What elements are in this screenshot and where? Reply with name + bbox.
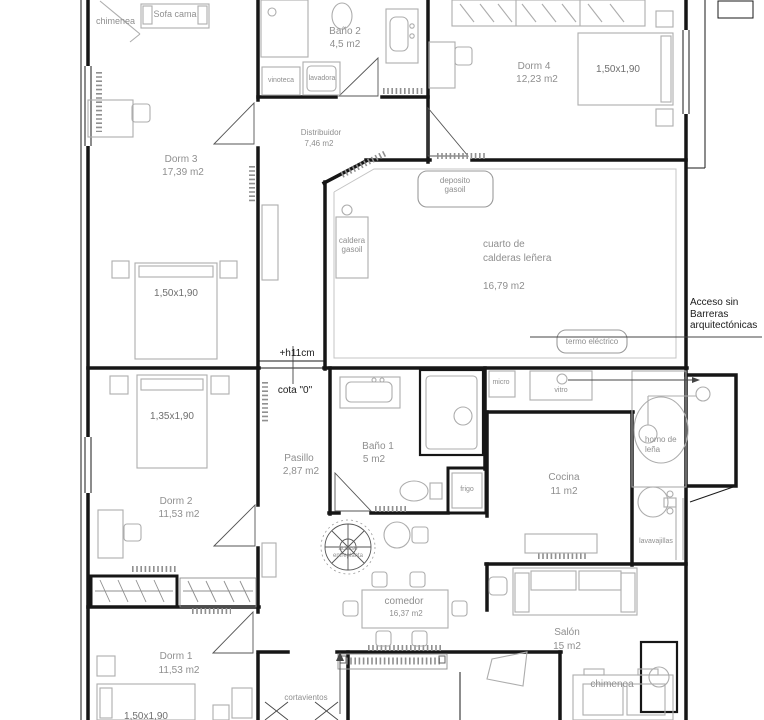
label-bed-dorm3: 1,50x1,90 (154, 288, 198, 300)
label-cota-cero: cota "0" (278, 385, 312, 397)
label-dorm1-name: Dorm 1 (160, 651, 193, 663)
cabinet-comedor (262, 543, 276, 577)
washbasin-bano1 (340, 377, 400, 408)
desk-dorm4 (429, 42, 472, 88)
washbasin-bano2 (386, 9, 418, 63)
label-salon-name: Salón (554, 627, 580, 639)
label-dorm3-area: 17,39 m2 (162, 167, 204, 179)
desk-dorm2 (98, 510, 141, 558)
horno-lena-oven (632, 371, 710, 487)
label-bed-dorm1: 1,50x1,90 (124, 711, 168, 720)
closet-dorm4 (452, 0, 645, 26)
cabinet-distribuidor (262, 205, 278, 280)
label-distribuidor-area: 7,46 m2 (305, 139, 334, 148)
sofa-salon (513, 568, 637, 615)
chair-dorm1 (213, 688, 252, 720)
label-chimenea-salon: chimenea (590, 679, 633, 691)
vitro-box (530, 371, 592, 400)
label-vitro: vitro (554, 387, 567, 395)
label-pasillo-name: Pasillo (284, 453, 313, 465)
label-termo-electrico: termo eléctrico (566, 337, 618, 346)
label-lavavajillas: lavavajillas (639, 538, 673, 546)
label-lavadora: lavadora (309, 75, 336, 83)
label-micro: micro (492, 379, 509, 387)
side-table-salon (489, 577, 507, 595)
label-distribuidor-name: Distribuidor (301, 128, 341, 137)
label-dorm2-name: Dorm 2 (160, 496, 193, 508)
label-cocina-area: 11 m2 (550, 486, 577, 498)
shower-bano1-inner (426, 376, 477, 449)
label-chimenea-top: chimenea (96, 16, 135, 27)
label-comedor-name: comedor (385, 596, 424, 608)
label-dorm2-area: 11,53 m2 (159, 509, 200, 521)
label-pasillo-area: 2,87 m2 (283, 466, 319, 478)
label-step-h11cm: +h11cm (279, 348, 314, 360)
label-caldera-gasoil: caldera gasoil (332, 236, 372, 255)
label-acceso-sin-barreras: Acceso sin Barreras arquitectónicas (690, 297, 764, 332)
rug-porch (487, 652, 527, 686)
label-horno-lena: horno de leña (645, 435, 689, 454)
toilet-bano1 (400, 481, 442, 501)
lavavajillas-unit (676, 498, 683, 560)
label-dorm4-area: 12,23 m2 (516, 74, 558, 86)
label-escalera: acceso entreplanta (325, 546, 371, 560)
bed-dorm3 (112, 261, 237, 359)
label-bano1-area: 5 m2 (363, 454, 385, 466)
kitchen-bench (525, 534, 597, 553)
label-calderas-name: cuarto de calderas leñera (483, 238, 555, 266)
label-bano2-area: 4,5 m2 (330, 39, 361, 51)
label-bed-dorm4: 1,50x1,90 (596, 64, 640, 76)
label-bano2-name: Baño 2 (329, 26, 361, 38)
label-dorm1-area: 11,53 m2 (159, 665, 200, 677)
label-cortavientos: cortavientos (284, 693, 327, 702)
label-frigo: frigo (460, 486, 474, 494)
label-calderas-area: 16,79 m2 (483, 281, 525, 293)
label-sofa-cama: Sofa cama (153, 9, 196, 20)
label-salon-area: 15 m2 (553, 641, 581, 653)
label-comedor-area: 16,37 m2 (389, 609, 422, 618)
label-bano1-name: Baño 1 (362, 441, 394, 453)
chair-extra (412, 527, 428, 543)
shower-bano2 (261, 0, 308, 57)
floor-plan: chimenea Sofa cama Baño 2 4,5 m2 vinotec… (0, 0, 764, 720)
label-bed-dorm2: 1,35x1,90 (150, 411, 194, 423)
label-dorm3-name: Dorm 3 (165, 154, 198, 166)
label-deposito-gasoil: deposito gasoil (429, 176, 481, 195)
kitchen-sink (638, 487, 676, 517)
label-dorm4-name: Dorm 4 (518, 61, 551, 73)
pouf (384, 522, 410, 548)
label-vinoteca: vinoteca (268, 77, 294, 85)
floor-plan-drawing (0, 0, 764, 720)
label-cocina-name: Cocina (548, 472, 579, 484)
